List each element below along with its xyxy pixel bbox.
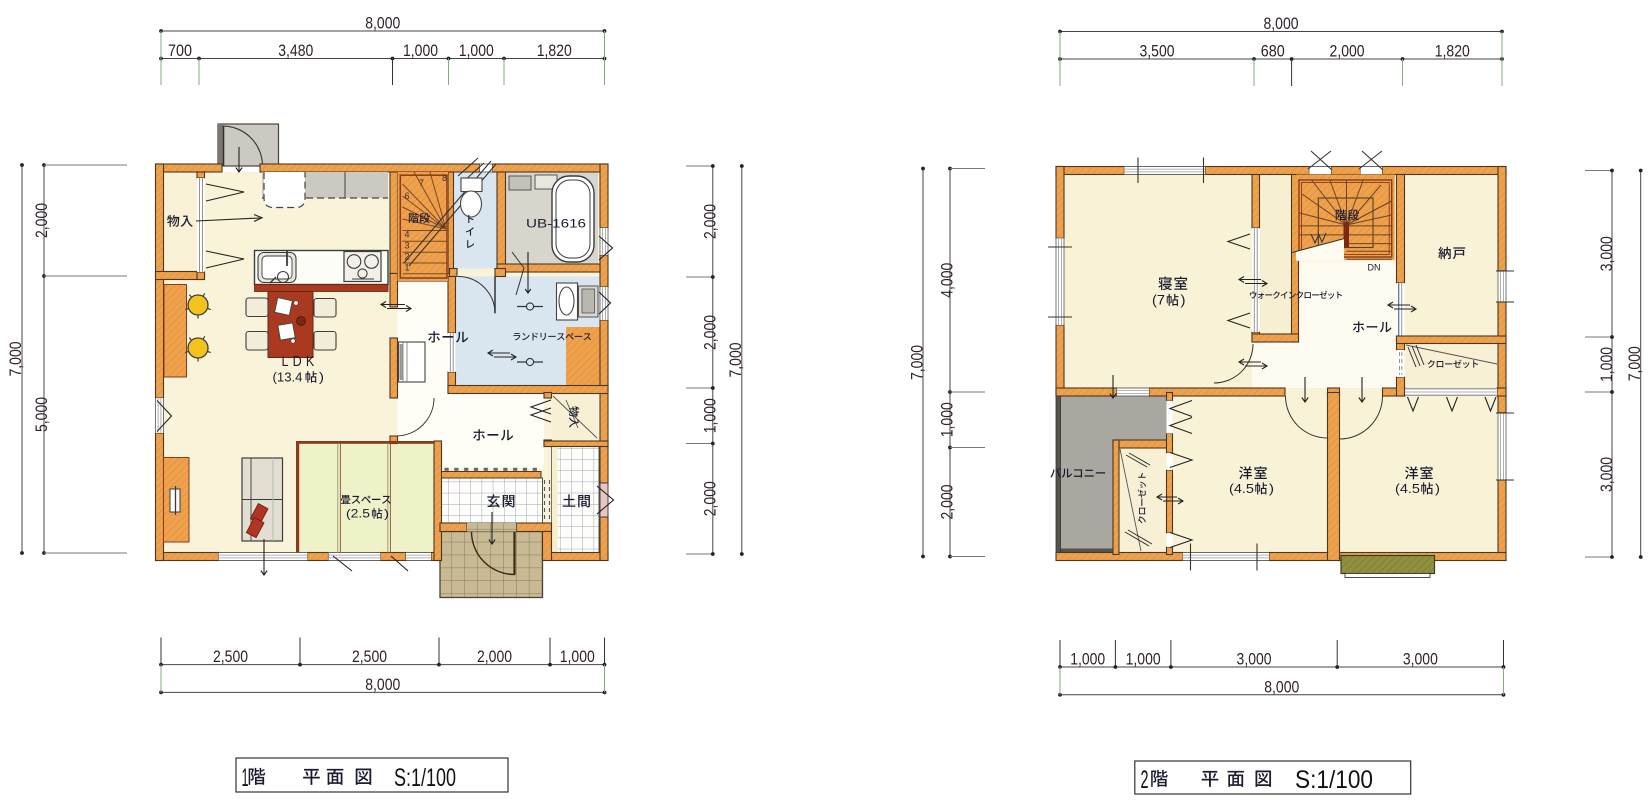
svg-text:2: 2 xyxy=(1141,766,1149,794)
svg-text:7,000: 7,000 xyxy=(6,342,25,377)
svg-text:(7: (7 xyxy=(1152,293,1165,308)
svg-text:5,000: 5,000 xyxy=(32,397,51,432)
svg-text:UB-1616: UB-1616 xyxy=(526,217,586,231)
svg-text:LDK: LDK xyxy=(282,353,319,370)
svg-text:S:1/100: S:1/100 xyxy=(1295,766,1373,794)
svg-text:3,480: 3,480 xyxy=(278,41,313,60)
svg-text:6: 6 xyxy=(405,191,410,201)
svg-text:7,000: 7,000 xyxy=(908,345,927,380)
svg-text:1,000: 1,000 xyxy=(403,41,438,60)
svg-text:(4.5: (4.5 xyxy=(1229,481,1254,496)
svg-text:1,000: 1,000 xyxy=(701,398,720,433)
svg-text:1,000: 1,000 xyxy=(560,647,595,666)
svg-text:1: 1 xyxy=(405,263,410,273)
svg-text:2,000: 2,000 xyxy=(701,315,720,350)
svg-text:1,820: 1,820 xyxy=(537,41,572,60)
svg-text:): ) xyxy=(1435,481,1440,496)
svg-text:1,000: 1,000 xyxy=(459,41,494,60)
svg-text:2,000: 2,000 xyxy=(938,485,957,520)
svg-text:7,000: 7,000 xyxy=(1625,346,1644,381)
svg-text:3,000: 3,000 xyxy=(1237,650,1272,669)
svg-text:7,000: 7,000 xyxy=(726,343,745,378)
svg-text:4,000: 4,000 xyxy=(938,263,957,298)
svg-text:8,000: 8,000 xyxy=(1264,14,1299,33)
svg-text:1: 1 xyxy=(242,764,249,792)
svg-text:DN: DN xyxy=(1368,263,1381,273)
svg-text:2,000: 2,000 xyxy=(701,204,720,239)
svg-text:8,000: 8,000 xyxy=(365,14,400,33)
svg-text:1,000: 1,000 xyxy=(1597,347,1616,382)
svg-text:1,000: 1,000 xyxy=(1126,650,1161,669)
svg-text:): ) xyxy=(1269,481,1274,496)
svg-text:3,000: 3,000 xyxy=(1597,236,1616,271)
svg-text:2,000: 2,000 xyxy=(32,203,51,238)
svg-text:3,500: 3,500 xyxy=(1140,42,1175,61)
svg-text:1,820: 1,820 xyxy=(1435,42,1470,61)
svg-text:(13.4: (13.4 xyxy=(273,370,303,385)
svg-text:3,000: 3,000 xyxy=(1597,457,1616,492)
svg-text:): ) xyxy=(319,370,324,385)
svg-text:1,000: 1,000 xyxy=(938,402,957,437)
svg-text:700: 700 xyxy=(168,41,192,60)
svg-text:7: 7 xyxy=(419,178,424,188)
svg-text:): ) xyxy=(384,507,389,521)
svg-text:3: 3 xyxy=(405,241,410,251)
svg-text:2,000: 2,000 xyxy=(477,647,512,666)
svg-text:S:1/100: S:1/100 xyxy=(394,764,456,792)
svg-text:1,000: 1,000 xyxy=(1070,650,1105,669)
svg-text:8: 8 xyxy=(442,173,447,183)
svg-text:(4.5: (4.5 xyxy=(1395,481,1420,496)
svg-text:2,000: 2,000 xyxy=(1330,42,1365,61)
svg-text:680: 680 xyxy=(1261,42,1285,61)
svg-text:4: 4 xyxy=(405,230,410,240)
svg-text:2,000: 2,000 xyxy=(701,481,720,516)
svg-text:8,000: 8,000 xyxy=(365,675,400,694)
svg-text:): ) xyxy=(1181,293,1186,308)
svg-text:2,500: 2,500 xyxy=(352,647,387,666)
svg-text:8,000: 8,000 xyxy=(1264,677,1299,696)
svg-text:(2.5: (2.5 xyxy=(346,507,370,521)
svg-text:2,500: 2,500 xyxy=(213,647,248,666)
svg-text:3,000: 3,000 xyxy=(1403,650,1438,669)
